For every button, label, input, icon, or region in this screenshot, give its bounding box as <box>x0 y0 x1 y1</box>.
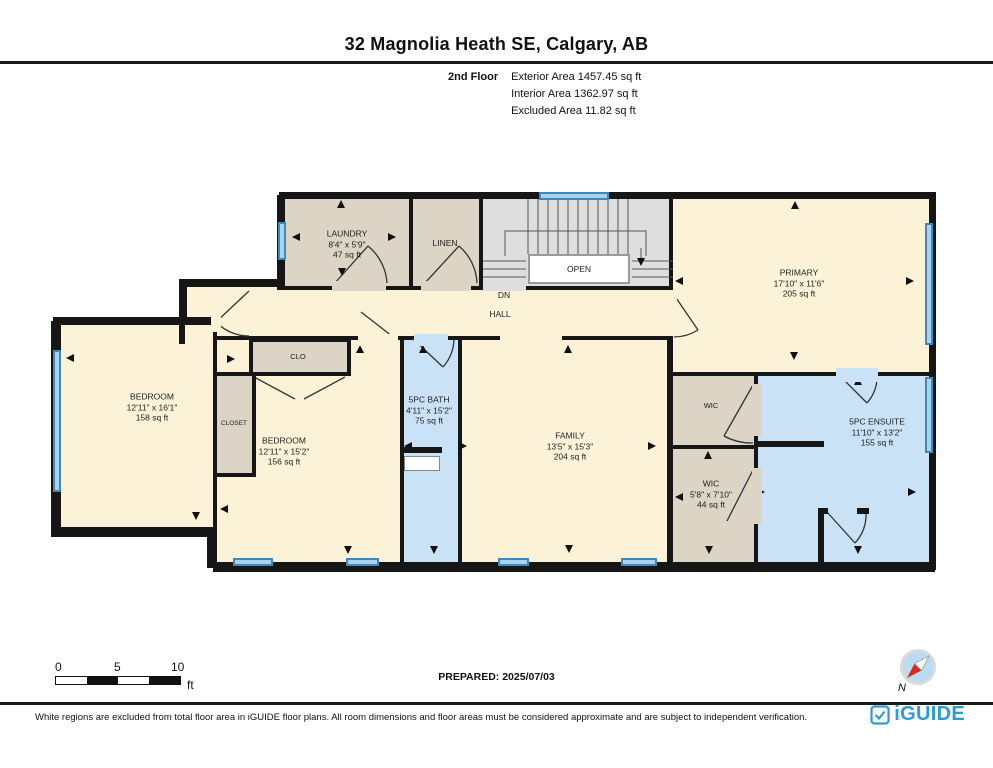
exterior-area: Exterior Area 1457.45 sq ft <box>511 69 641 86</box>
excluded-area: Excluded Area 11.82 sq ft <box>511 103 641 120</box>
iguide-logo: iGUIDE <box>870 703 965 726</box>
room-dims: 12'11" x 15'2" <box>259 446 310 457</box>
label-linen: LINEN <box>432 238 457 249</box>
doorway-wic-upper <box>752 384 762 436</box>
doorway-bath <box>414 334 448 346</box>
doorway-wic-lower <box>752 468 762 524</box>
wall-hall-left <box>179 283 185 344</box>
arrow-icon <box>338 268 346 276</box>
room-name: WIC <box>690 478 732 489</box>
label-bedroom-1: BEDROOM 12'11" x 16'1" 158 sq ft <box>127 391 178 423</box>
arrow-icon <box>704 451 712 459</box>
room-ensuite <box>754 372 933 566</box>
wall-bottom <box>213 566 935 572</box>
label-bath: 5PC BATH 4'11" x 15'2" 75 sq ft <box>406 394 452 426</box>
window-laundry <box>278 222 286 260</box>
doorway-primary <box>667 290 677 336</box>
footer-divider <box>0 702 993 705</box>
compass-icon: N <box>894 646 940 696</box>
arrow-icon <box>192 512 200 520</box>
arrow-icon <box>565 545 573 553</box>
doorway-laundry <box>332 281 386 291</box>
label-wic-lower: WIC 5'8" x 7'10" 44 sq ft <box>690 478 732 510</box>
arrow-icon <box>790 352 798 360</box>
area-stats: Exterior Area 1457.45 sq ft Interior Are… <box>511 69 641 120</box>
window-bedroom-2-b <box>346 558 379 566</box>
room-name: WIC <box>704 401 719 412</box>
wall-hall-top <box>179 279 283 284</box>
arrow-icon <box>337 200 345 208</box>
interior-area: Interior Area 1362.97 sq ft <box>511 86 641 103</box>
room-dims: 5'8" x 7'10" <box>690 489 732 500</box>
room-name: FAMILY <box>547 430 594 441</box>
window-family-a <box>498 558 529 566</box>
label-primary: PRIMARY 17'10" x 11'6" 205 sq ft <box>774 267 825 299</box>
window-ensuite <box>925 377 933 453</box>
window-bedroom-2-a <box>233 558 273 566</box>
label-dn: DN <box>498 290 510 301</box>
doorway-bedroom-1 <box>211 300 221 332</box>
room-dims: 4'11" x 15'2" <box>406 405 452 416</box>
header-divider <box>0 61 993 64</box>
arrow-icon <box>908 488 916 496</box>
arrow-icon <box>292 233 300 241</box>
room-dims: 12'11" x 16'1" <box>127 402 178 413</box>
label-laundry: LAUNDRY 8'4" x 5'9" 47 sq ft <box>327 228 367 260</box>
room-area: 205 sq ft <box>774 288 825 299</box>
page-title: 32 Magnolia Heath SE, Calgary, AB <box>0 34 993 55</box>
label-clo: CLO <box>290 352 305 363</box>
arrow-icon <box>356 345 364 353</box>
window-family-b <box>621 558 657 566</box>
bath-vanity <box>404 456 440 471</box>
floor-label: 2nd Floor <box>448 69 498 86</box>
arrow-icon <box>564 345 572 353</box>
room-area: 158 sq ft <box>127 412 178 423</box>
arrow-icon <box>791 201 799 209</box>
iguide-logo-icon <box>870 705 890 725</box>
room-name: HALL <box>489 309 510 320</box>
window-bedroom-1 <box>53 350 61 492</box>
room-dims: 13'5" x 15'3" <box>547 441 594 452</box>
room-name: 5PC ENSUITE <box>849 416 905 427</box>
wall-ensuite-partial <box>754 441 824 447</box>
label-wic-upper: WIC <box>704 401 719 412</box>
room-name: LAUNDRY <box>327 228 367 239</box>
label-ensuite: 5PC ENSUITE 11'10" x 13'2" 155 sq ft <box>849 416 905 448</box>
doorway-ensuite <box>836 368 878 382</box>
wall-wc-2 <box>857 508 869 514</box>
prepared-date: PREPARED: 2025/07/03 <box>0 671 993 683</box>
doorway-stairs <box>483 281 526 291</box>
room-name: BEDROOM <box>127 391 178 402</box>
arrow-icon <box>66 354 74 362</box>
room-name: BEDROOM <box>259 435 310 446</box>
doorway-bedroom-2 <box>358 334 398 346</box>
archway-family <box>500 334 562 346</box>
arrow-icon <box>705 546 713 554</box>
arrow-icon <box>675 277 683 285</box>
doorway-linen <box>421 281 471 291</box>
floor-stats: 2nd Floor Exterior Area 1457.45 sq ft In… <box>448 69 641 120</box>
arrow-icon <box>419 345 427 353</box>
footer-disclaimer: White regions are excluded from total fl… <box>35 712 807 723</box>
room-area: 204 sq ft <box>547 451 594 462</box>
wall-bath-partial <box>400 447 442 453</box>
label-closet: CLOSET <box>221 419 247 430</box>
room-dims: 17'10" x 11'6" <box>774 278 825 289</box>
arrow-icon <box>388 233 396 241</box>
label-family: FAMILY 13'5" x 15'3" 204 sq ft <box>547 430 594 462</box>
window-stairs <box>539 192 609 200</box>
arrow-icon <box>648 442 656 450</box>
floor-plan-page: 32 Magnolia Heath SE, Calgary, AB 2nd Fl… <box>0 0 993 768</box>
label-hall: HALL <box>489 309 510 320</box>
wall-wc-3 <box>818 508 824 566</box>
room-name: CLOSET <box>221 419 247 430</box>
arrow-icon <box>227 355 235 363</box>
stair-open-box: OPEN <box>528 254 630 284</box>
room-dims: 11'10" x 13'2" <box>849 427 905 438</box>
label-bedroom-2: BEDROOM 12'11" x 15'2" 156 sq ft <box>259 435 310 467</box>
iguide-logo-text: iGUIDE <box>894 703 965 726</box>
arrow-icon <box>220 505 228 513</box>
window-primary <box>925 223 933 345</box>
room-area: 44 sq ft <box>690 499 732 510</box>
room-name: LINEN <box>432 238 457 249</box>
room-area: 75 sq ft <box>406 415 452 426</box>
arrow-icon <box>854 546 862 554</box>
room-bedroom-1 <box>57 321 217 531</box>
room-name: 5PC BATH <box>406 394 452 405</box>
arrow-icon <box>675 493 683 501</box>
compass-north-label: N <box>898 682 906 694</box>
room-area: 47 sq ft <box>327 249 367 260</box>
arrow-icon <box>430 546 438 554</box>
arrow-icon <box>344 546 352 554</box>
stairs-down-label: DN <box>498 290 510 301</box>
room-name: CLO <box>290 352 305 363</box>
room-area: 155 sq ft <box>849 437 905 448</box>
room-name: PRIMARY <box>774 267 825 278</box>
stairs-down-arrow <box>637 258 645 266</box>
wall-bedroom1-top <box>53 317 217 322</box>
room-dims: 8'4" x 5'9" <box>327 239 367 250</box>
arrow-icon <box>459 442 467 450</box>
room-area: 156 sq ft <box>259 456 310 467</box>
arrow-icon <box>906 277 914 285</box>
wall-bedroom1-bottom <box>57 531 215 537</box>
